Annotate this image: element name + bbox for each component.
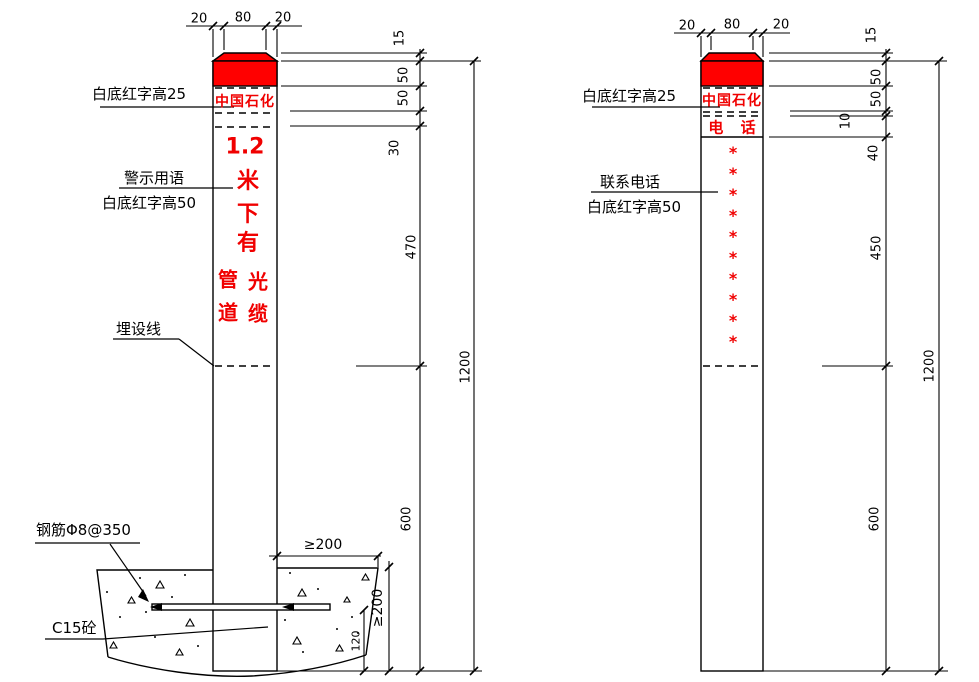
left-dim-600: 600: [400, 507, 415, 532]
warning-char-dao: 道: [218, 297, 238, 326]
left-brand-text: 中国石化: [215, 91, 275, 111]
left-warning-note-line1: 警示用语: [124, 167, 184, 188]
burial-line-label: 埋设线: [116, 318, 161, 339]
marker-post-drawing: 20 80 20 白底红字高25 警示用语 白底红字高50 埋设线 钢筋Φ8@3…: [0, 0, 979, 682]
left-dim-50b: 50: [397, 90, 412, 107]
right-dim-15: 15: [865, 27, 880, 44]
asterisk: *: [729, 208, 737, 224]
phone-number-placeholder: * * * * * * * * * *: [729, 145, 737, 350]
asterisk: *: [729, 229, 737, 245]
right-post-cap: [701, 53, 763, 61]
warning-char-xia: 下: [237, 196, 259, 228]
right-dim-10: 10: [839, 113, 854, 130]
warning-char-guan: 管: [218, 264, 238, 293]
right-post-red-band: [701, 61, 763, 86]
right-dim-1200: 1200: [923, 349, 938, 382]
right-dim-50a: 50: [870, 69, 885, 86]
asterisk: *: [729, 250, 737, 266]
foundation-width-dim: ≥200: [304, 537, 342, 553]
rebar-offset-dim: 120: [350, 631, 363, 652]
warning-number: 1.2: [226, 135, 265, 160]
right-top-dim-80: 80: [724, 18, 741, 33]
asterisk: *: [729, 145, 737, 161]
warning-char-mi: 米: [237, 163, 259, 195]
rebar-leader-arrow: [138, 589, 149, 602]
left-post-red-band: [213, 61, 277, 86]
rebar-bar: [152, 604, 330, 610]
phone-header-text: 电 话: [708, 117, 761, 138]
phone-note-line2: 白底红字高50: [587, 196, 681, 217]
right-band-note-label: 白底红字高25: [582, 85, 676, 106]
left-dim-30: 30: [388, 140, 403, 157]
foundation-depth-dim: ≥200: [370, 589, 386, 627]
warning-char-lan: 缆: [248, 298, 268, 327]
asterisk: *: [729, 334, 737, 350]
left-top-dim-20a: 20: [191, 12, 208, 27]
asterisk: *: [729, 292, 737, 308]
asterisk: *: [729, 166, 737, 182]
left-dim-470: 470: [405, 235, 420, 260]
rebar-label: 钢筋Φ8@350: [36, 519, 131, 540]
asterisk: *: [729, 271, 737, 287]
warning-char-guang: 光: [248, 266, 268, 295]
left-dim-15: 15: [393, 30, 408, 47]
phone-note-line1: 联系电话: [600, 171, 660, 192]
asterisk: *: [729, 187, 737, 203]
right-dim-600: 600: [868, 507, 883, 532]
right-dim-50b: 50: [870, 91, 885, 108]
warning-char-you: 有: [237, 225, 259, 257]
right-dim-450: 450: [870, 236, 885, 261]
left-top-dimension: [186, 22, 302, 57]
right-brand-text: 中国石化: [702, 90, 762, 110]
left-band-note-label: 白底红字高25: [92, 83, 186, 104]
concrete-label: C15砼: [52, 617, 97, 638]
left-dim-50a: 50: [397, 67, 412, 84]
right-top-dim-20a: 20: [679, 19, 696, 34]
right-dim-40: 40: [867, 145, 882, 162]
left-top-dim-20b: 20: [275, 11, 292, 26]
left-post-cap: [213, 53, 277, 61]
asterisk: *: [729, 313, 737, 329]
left-dim-1200: 1200: [459, 350, 474, 383]
left-warning-note-line2: 白底红字高50: [102, 192, 196, 213]
left-top-dim-80: 80: [235, 11, 252, 26]
right-top-dim-20b: 20: [773, 18, 790, 33]
